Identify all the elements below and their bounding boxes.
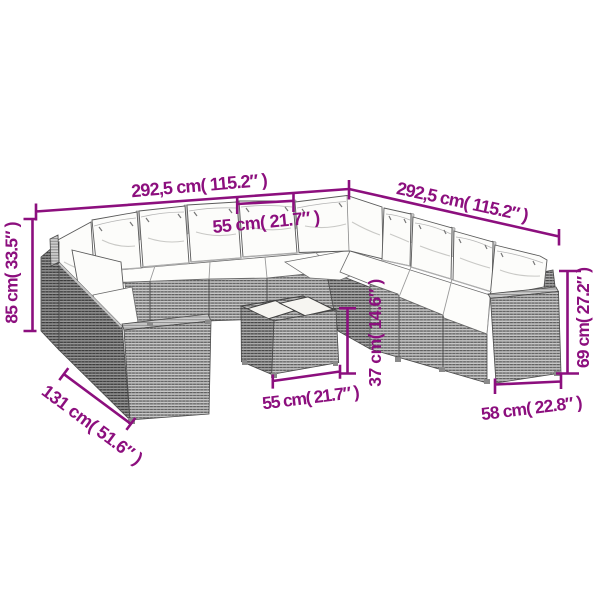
svg-text:69 cm( 27.2″ ): 69 cm( 27.2″ ) (573, 268, 593, 368)
svg-text:37 cm( 14.6″ ): 37 cm( 14.6″ ) (365, 279, 385, 387)
svg-text:85 cm( 33.5″ ): 85 cm( 33.5″ ) (2, 222, 22, 323)
